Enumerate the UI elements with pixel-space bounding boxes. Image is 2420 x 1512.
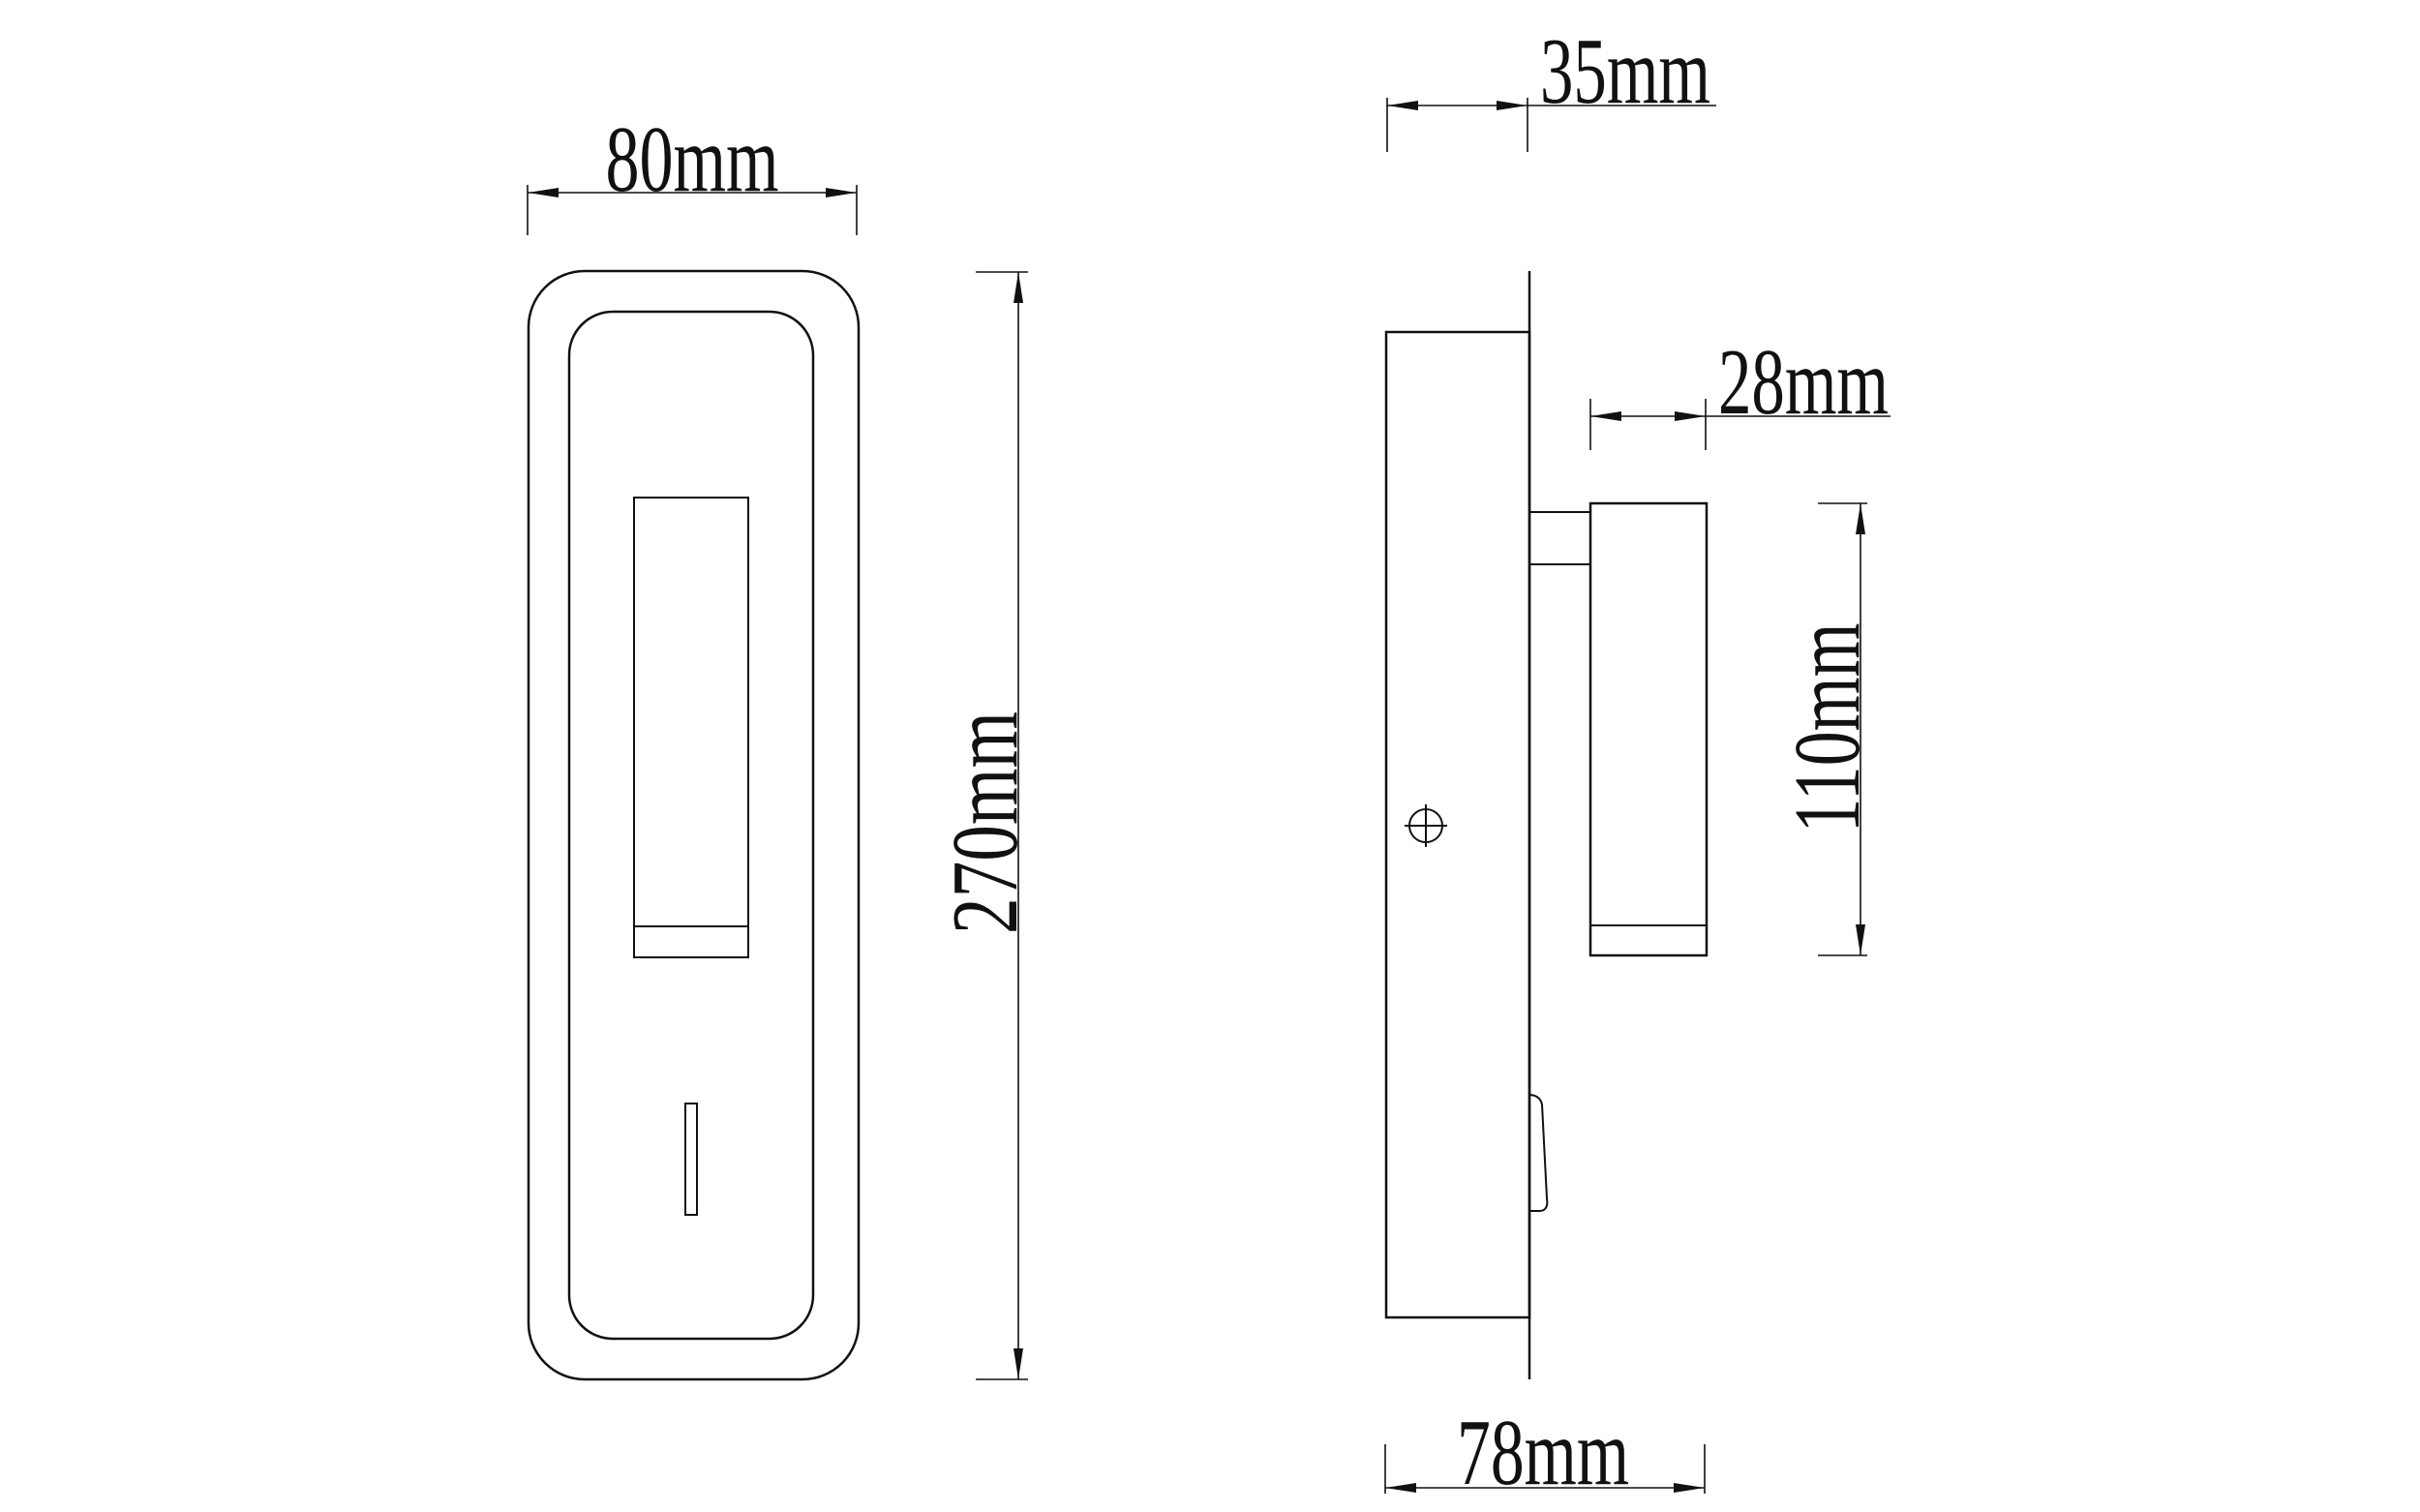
arrowhead-top (1013, 272, 1023, 303)
front-lamp-head-panel (634, 498, 748, 957)
front-inner-face-outline (569, 312, 813, 1339)
arrowhead-left (1385, 1483, 1416, 1493)
side-switch-knob (1530, 1095, 1547, 1211)
arrowhead-top (1856, 503, 1865, 534)
dimension-label-plate-depth: 35mm (1540, 19, 1710, 124)
arrowhead-right (1497, 101, 1528, 110)
dimension-total-depth: 78mm (1385, 1401, 1705, 1505)
side-view (1386, 271, 1707, 1379)
side-connector-arm (1529, 512, 1590, 564)
arrowhead-right (1675, 411, 1706, 421)
dimension-front-height: 270mm (933, 272, 1038, 1379)
dimension-drawing-page: 80mm 270mm 35mm (0, 0, 2420, 1512)
dimension-label-front-width: 80mm (606, 107, 779, 212)
dimension-label-head-length: 110mm (1775, 623, 1880, 833)
arrowhead-bottom (1013, 1348, 1023, 1379)
dimension-head-length: 110mm (1775, 503, 1880, 955)
drawing-canvas: 80mm 270mm 35mm (0, 0, 2420, 1512)
arrowhead-left (528, 188, 559, 197)
front-view (529, 271, 859, 1379)
side-lamp-head-outline (1590, 503, 1707, 955)
arrowhead-bottom (1856, 924, 1865, 955)
front-switch-slot (685, 1104, 697, 1215)
arrowhead-right (826, 188, 857, 197)
arrowhead-left (1590, 411, 1621, 421)
dimension-plate-depth: 35mm (1387, 19, 1716, 152)
dimension-label-head-diameter: 28mm (1718, 330, 1889, 435)
dimension-label-front-height: 270mm (933, 711, 1038, 934)
dimension-front-width: 80mm (528, 107, 857, 235)
dimension-label-total-depth: 78mm (1457, 1401, 1629, 1505)
front-outer-body-outline (529, 271, 859, 1379)
dimension-head-diameter: 28mm (1590, 330, 1891, 450)
arrowhead-right (1674, 1483, 1705, 1493)
arrowhead-left (1387, 101, 1418, 110)
side-screw-symbol (1405, 804, 1447, 847)
